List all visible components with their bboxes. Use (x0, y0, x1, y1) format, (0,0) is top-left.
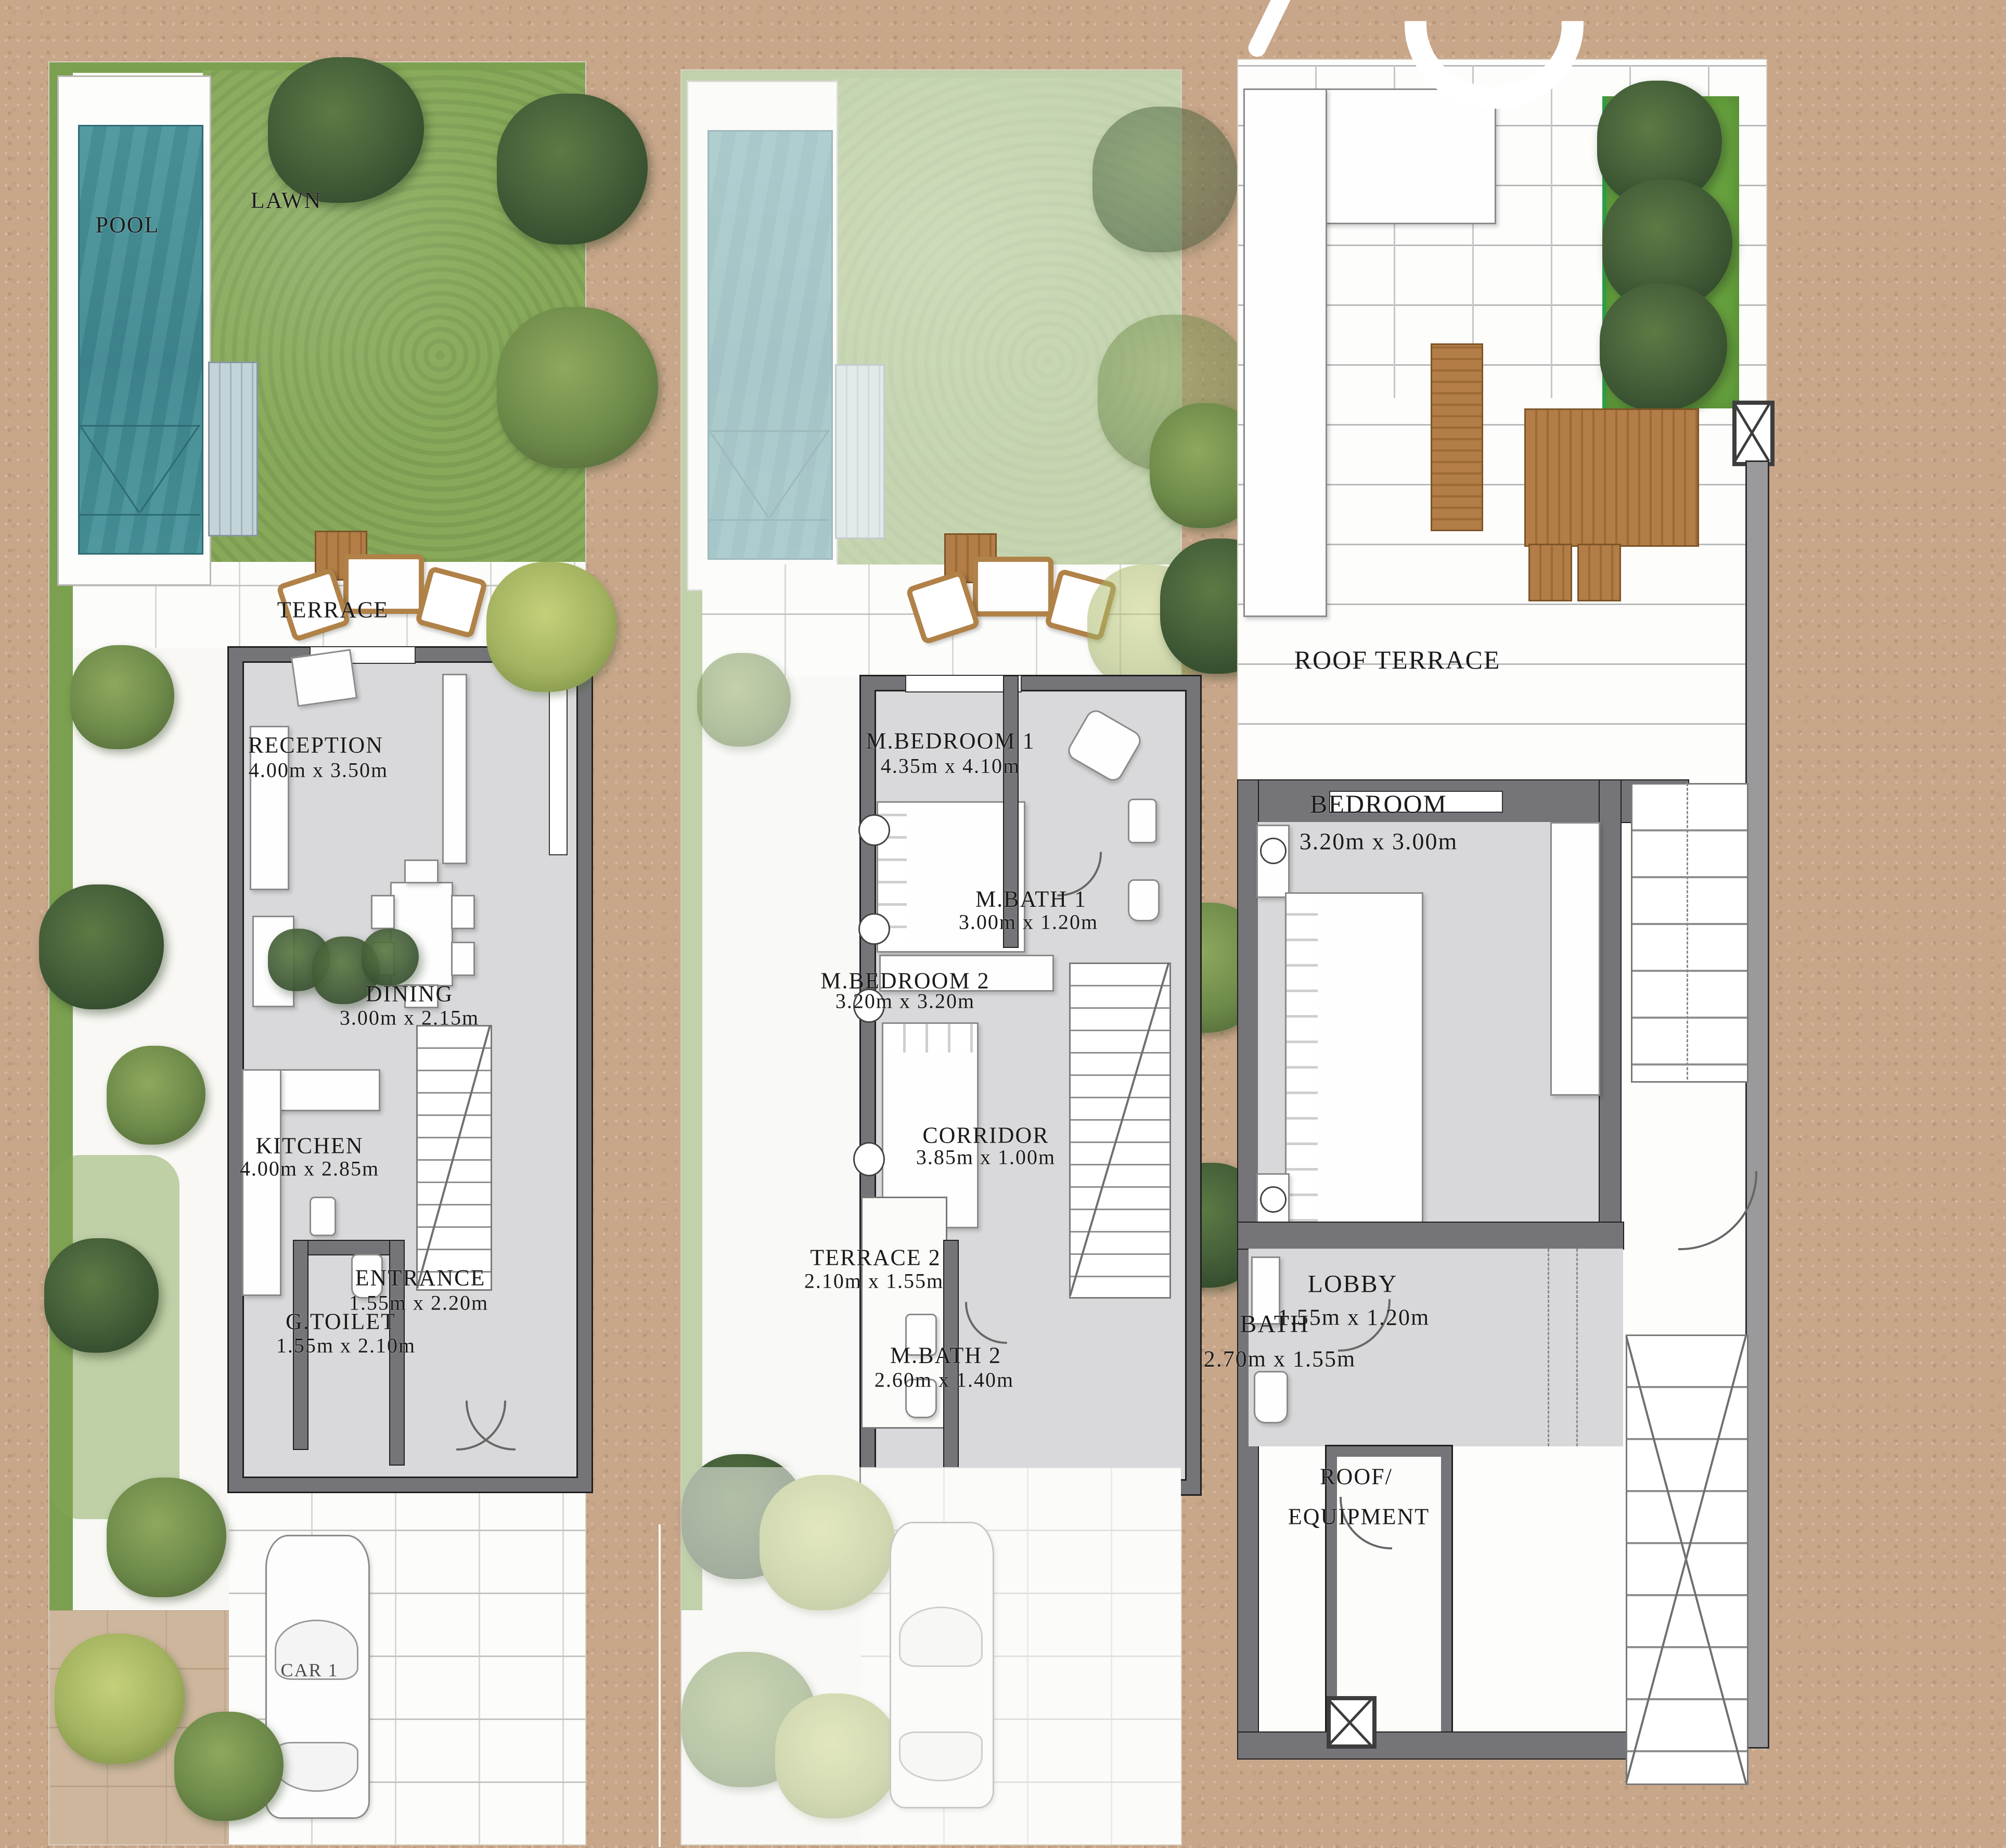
room-label-entrance: ENTRANCE (355, 1265, 486, 1291)
room-label-roof-equipment-1: ROOF/ (1320, 1464, 1393, 1490)
roof-bench (1431, 343, 1483, 531)
faded-overlay (681, 1467, 1181, 1844)
tree (1092, 107, 1238, 252)
room-dims-terrace2: 2.10m x 1.55m (804, 1269, 944, 1293)
dining-chair (404, 859, 439, 883)
tree (70, 645, 174, 749)
room-dims-bedroom: 3.20m x 3.00m (1300, 828, 1458, 855)
window-terrace-door (549, 676, 568, 855)
door-arc (1602, 1095, 1757, 1250)
dining-chair (451, 895, 475, 929)
toilet-basin (310, 1197, 336, 1236)
room-label-terrace: TERRACE (277, 597, 389, 623)
roof-stool (1528, 544, 1572, 601)
bed-pillows (883, 1024, 974, 1053)
room-label-roof-terrace: ROOF TERRACE (1294, 645, 1501, 675)
wardrobe (1550, 822, 1600, 1096)
tree (39, 884, 164, 1009)
room-label-pool: POOL (96, 212, 160, 238)
tree (486, 562, 616, 692)
parapet-wall-right (1745, 460, 1769, 1749)
staircase-upper (1631, 783, 1748, 1083)
room-label-car1: CAR 1 (280, 1659, 338, 1681)
nightstand-lamp (858, 814, 890, 846)
decorative-glyph (1245, 0, 1295, 60)
panel-divider-line (659, 1524, 661, 1847)
cabinet (442, 674, 467, 864)
room-label-mbath1: M.BATH 1 (975, 886, 1087, 913)
lobby-dashed-line (1576, 1249, 1579, 1446)
pool-steps (208, 362, 258, 536)
armchair (291, 649, 357, 707)
tree (497, 94, 648, 245)
dining-chair (371, 895, 395, 929)
nightstand-lamp (858, 913, 890, 945)
room-label-gtoilet: G.TOILET (286, 1308, 396, 1335)
room-label-roof-equipment-2: EQUIPMENT (1288, 1504, 1430, 1530)
wall-bottom (1238, 1732, 1626, 1759)
room-label-bath: BATH (1240, 1310, 1309, 1339)
outdoor-sofa (973, 557, 1053, 617)
nightstand-lamp (853, 1142, 885, 1176)
room-label-mbath2: M.BATH 2 (890, 1342, 1001, 1369)
tree (107, 1046, 205, 1145)
room-dims-reception: 4.00m x 3.50m (249, 758, 388, 782)
room-dims-mbath1: 3.00m x 1.20m (959, 910, 1098, 934)
room-dims-gtoilet: 1.55m x 2.10m (276, 1333, 416, 1358)
first-floor-plan: M.BEDROOM 1 4.35m x 4.10m M.BATH 1 3.00m… (681, 70, 1181, 1844)
pool-line (78, 514, 200, 516)
pool-line (78, 425, 200, 427)
room-label-lawn: LAWN (251, 187, 322, 214)
room-label-kitchen: KITCHEN (255, 1133, 363, 1159)
kitchen-counter (242, 1069, 281, 1296)
room-dims-corridor: 3.85m x 1.00m (916, 1145, 1056, 1170)
staircase-lower (1626, 1334, 1748, 1785)
roof-sofa (1243, 88, 1327, 617)
pool (78, 125, 203, 555)
room-label-mbedroom1: M.BEDROOM 1 (866, 728, 1035, 754)
room-dims-mbedroom2: 3.20m x 3.20m (835, 989, 975, 1013)
bath-wc (1254, 1371, 1288, 1423)
car-rear-window (275, 1742, 358, 1792)
roof-stool (1577, 544, 1621, 601)
room-label-reception: RECEPTION (248, 732, 383, 759)
room-label-bedroom: BEDROOM (1310, 789, 1447, 819)
bath1-wc (1128, 879, 1160, 921)
toilet-wall (294, 1241, 403, 1254)
room-dims-bath: 2.70m x 1.55m (1204, 1346, 1356, 1372)
equipment-box (1732, 401, 1774, 466)
room-dims-mbath2: 2.60m x 1.40m (875, 1368, 1014, 1392)
tree (497, 307, 658, 468)
room-label-terrace2: TERRACE 2 (810, 1244, 941, 1271)
roof-table (1524, 408, 1699, 547)
dining-chair (451, 942, 475, 976)
bed-pillows (1287, 894, 1318, 1244)
stair-guide-line (1687, 783, 1690, 1080)
roof-plan: ROOF TERRACE BEDROOM 3.20m x 3.00m LOBBY… (1238, 60, 1766, 1748)
wall-bedroom-bottom (1238, 1223, 1623, 1249)
ground-floor-plan: POOL LAWN TERRACE RECEPTION 4.00m x 3.50… (49, 62, 585, 1844)
lobby-dashed-line (1548, 1249, 1551, 1446)
room-label-dining: DINING (366, 981, 453, 1007)
nightstand-lamp (1260, 838, 1287, 864)
room-dims-kitchen: 4.00m x 2.85m (240, 1157, 379, 1181)
equipment-box (1327, 1696, 1377, 1749)
wall-mid-vertical (1600, 780, 1621, 1249)
floor-plan-sheet: POOL LAWN TERRACE RECEPTION 4.00m x 3.50… (0, 0, 2006, 1848)
room-label-lobby: LOBBY (1308, 1270, 1398, 1299)
bath1-basin (1128, 799, 1157, 843)
tree (107, 1478, 226, 1597)
nightstand-lamp (1260, 1186, 1287, 1213)
room-dims-dining: 3.00m x 2.15m (340, 1006, 479, 1030)
room-dims-mbedroom1: 4.35m x 4.10m (881, 754, 1020, 778)
